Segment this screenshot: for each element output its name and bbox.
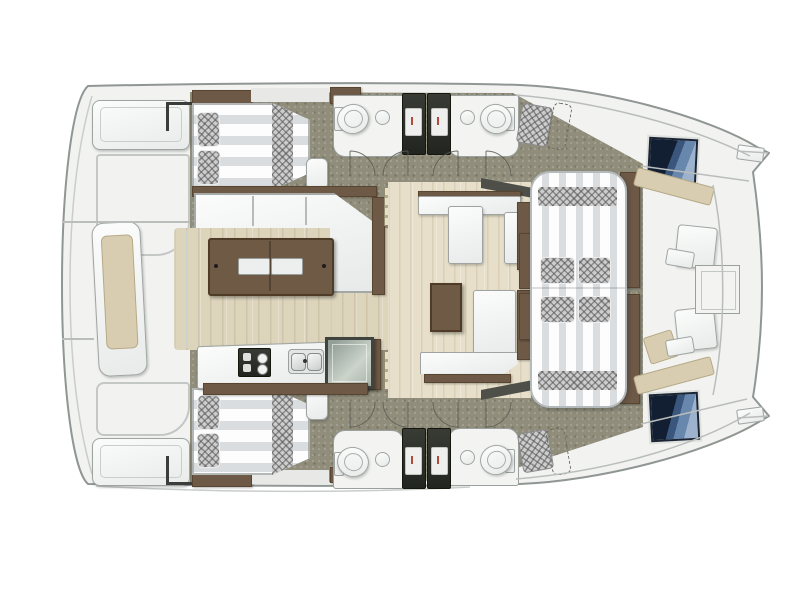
sunpad-cushion xyxy=(578,257,611,284)
bathroom-sink xyxy=(460,450,475,465)
shower-mixer-mark xyxy=(437,117,439,125)
pillow-checkered xyxy=(196,433,220,469)
table-hinge-dot xyxy=(214,264,218,268)
toilet-bowl xyxy=(485,108,508,130)
sunpad-checker-band xyxy=(538,371,617,390)
bathroom-sink xyxy=(375,452,390,467)
shower-mixer-mark xyxy=(411,117,413,125)
stern-corner-frame-bottom xyxy=(166,456,193,485)
toilet-bowl xyxy=(342,108,365,130)
berth-blanket-band xyxy=(272,388,293,475)
toilet-bowl xyxy=(342,451,365,473)
galley-sink-unit xyxy=(288,349,324,374)
toilet-bowl xyxy=(485,449,508,471)
sunpad-cushion xyxy=(540,257,575,284)
double-berth-starboard xyxy=(192,388,310,475)
stove-burner xyxy=(257,353,268,364)
sofa-cushion-divider xyxy=(252,196,254,226)
tender-garage-seam-bottom xyxy=(96,382,190,436)
cockpit-table xyxy=(695,265,740,314)
berth-blanket-band xyxy=(272,103,293,190)
pillow-checkered xyxy=(196,395,220,431)
saloon-dining-table xyxy=(208,238,334,296)
deck-hatch-starboard xyxy=(649,392,700,442)
shower-mixer-mark xyxy=(437,456,439,464)
lounge-seat-bottom xyxy=(473,290,516,356)
galley-skylight-appliance xyxy=(325,337,374,389)
sunpad-cushion xyxy=(578,296,611,323)
stove-control xyxy=(243,353,251,361)
lounge-seat-top xyxy=(448,206,483,264)
pillow-checkered xyxy=(196,150,220,186)
cabin-headwall-top xyxy=(251,88,329,102)
lounge-bench-front-bottom xyxy=(424,374,511,383)
transom-bench-cushion xyxy=(101,234,139,350)
transom-seam-line-upper xyxy=(62,221,190,223)
shower-tray xyxy=(431,108,448,136)
lounge-bench-bottom xyxy=(420,352,520,376)
lounge-side-table xyxy=(430,283,462,332)
table-glass-inlay xyxy=(271,258,303,275)
sink-basin xyxy=(307,353,322,371)
galley-cabinet-front xyxy=(203,383,368,395)
sunpad-center-seam xyxy=(532,287,625,289)
table-hinge-dot xyxy=(322,264,326,268)
catamaran-floor-plan: Catamaran yacht interior layout — overhe… xyxy=(0,0,800,600)
sunpad-cushion xyxy=(540,296,575,323)
table-glass-inlay xyxy=(238,258,270,275)
double-berth-port xyxy=(192,103,310,190)
transom-bench xyxy=(91,221,148,377)
sink-faucet xyxy=(303,359,307,363)
transom-seam-line-lower xyxy=(62,338,94,340)
shower-mixer-mark xyxy=(411,456,413,464)
shower-tray xyxy=(405,447,422,475)
stern-corner-frame-top xyxy=(166,102,193,131)
stove-burner xyxy=(257,364,268,375)
skylight-inner-frame xyxy=(332,344,367,382)
saloon-threshold xyxy=(186,230,188,348)
sunpad-daybed xyxy=(530,171,627,408)
bathroom-sink xyxy=(375,110,390,125)
stove-control xyxy=(243,364,251,372)
pillow-checkered xyxy=(196,112,220,148)
cockpit-table-inner xyxy=(701,271,736,310)
galley-stove xyxy=(238,348,271,377)
shower-tray xyxy=(405,108,422,136)
bathroom-sink xyxy=(460,110,475,125)
wardrobe-top-a xyxy=(192,90,252,105)
sunpad-checker-band xyxy=(538,187,617,206)
sofa-cushion-divider xyxy=(305,197,307,225)
shower-tray xyxy=(431,447,448,475)
wardrobe-bottom-a xyxy=(192,473,252,487)
